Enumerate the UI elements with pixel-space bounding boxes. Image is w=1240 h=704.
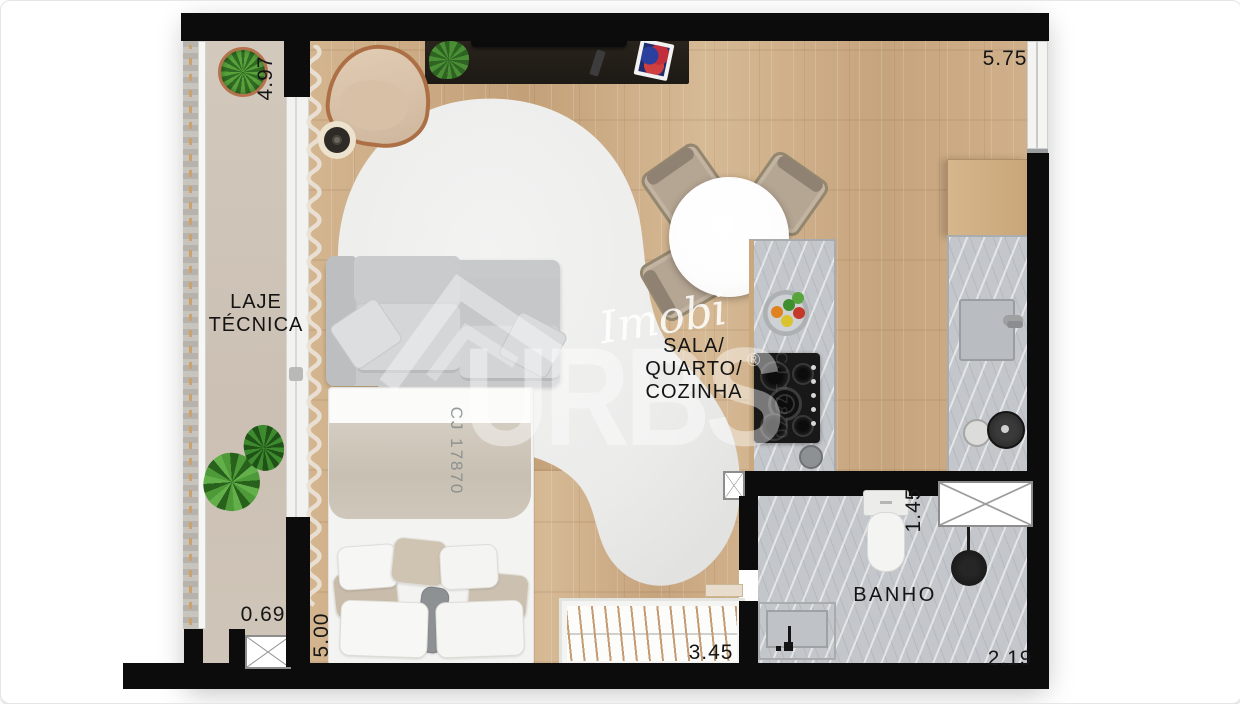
laje-tecnica-floor	[197, 41, 289, 663]
dimension-closet-width: 3.45	[681, 641, 741, 665]
cooktop-knobs	[811, 365, 816, 370]
label-line: LAJE	[204, 291, 308, 314]
tv-console	[425, 34, 689, 84]
magazine-icon	[634, 38, 675, 81]
wall-bathroom-left-a	[739, 496, 758, 570]
wall-laje-bottom-post	[184, 629, 203, 667]
blanket	[329, 423, 531, 519]
upper-cabinet	[947, 159, 1029, 237]
console-plant-icon	[429, 41, 469, 79]
door-handle-icon	[289, 367, 303, 381]
curtain-path	[309, 45, 320, 605]
machine-center	[1001, 425, 1009, 433]
kitchen-faucet-icon	[1007, 321, 1023, 328]
dimension-banho-width: 2.19	[979, 647, 1041, 671]
bed-pillow	[337, 543, 400, 591]
basin-faucet-base	[784, 642, 793, 651]
kitchen-sink-icon	[959, 299, 1015, 361]
grinder-icon	[799, 445, 823, 469]
label-line: TÉCNICA	[204, 314, 308, 337]
magazine-art	[638, 43, 669, 77]
laje-concrete-wall	[183, 41, 198, 629]
room-label-banho: BANHO	[851, 584, 939, 607]
speaker-center	[332, 135, 342, 145]
room-label-sala-quarto-cozinha: SALA/ QUARTO/ COZINHA	[629, 335, 759, 404]
coffee-maker-icon	[963, 409, 1021, 451]
burner	[792, 415, 814, 437]
burner	[760, 413, 788, 441]
dimension-laje-depth: 4.97	[254, 38, 278, 118]
fruit-bowl-icon	[763, 290, 809, 336]
wall-top	[181, 13, 1049, 41]
remote-icon	[589, 49, 606, 77]
shower-head-icon	[951, 550, 987, 586]
wall-insulation-line	[189, 45, 192, 625]
fruit-dots	[771, 306, 783, 318]
flush-button	[880, 501, 892, 504]
wall-laje-living-divider	[286, 517, 310, 667]
sofa-back-left	[354, 256, 460, 302]
sofa-back-right	[460, 278, 560, 324]
floor-speaker-icon	[318, 121, 356, 159]
double-bed	[328, 387, 532, 663]
duct-shaft-bathroom	[938, 481, 1033, 527]
dimension-laje-bottom-width: 0.69	[231, 603, 295, 627]
dimension-banho-depth: 1.45	[902, 470, 926, 550]
label-line: QUARTO/	[629, 358, 759, 381]
washbasin	[766, 610, 828, 648]
floorplan-image: Imobi URBS ® CJ 17870 CJ 17870 LAJE TÉCN…	[0, 0, 1240, 704]
wall-laje-jog	[229, 629, 245, 667]
dimension-sala-depth: 5.00	[310, 595, 334, 675]
cooktop-icon	[754, 353, 820, 443]
wall-right-upper	[1027, 153, 1049, 483]
wall-bathroom-left-b	[739, 601, 758, 665]
wall-post-top-left	[284, 31, 310, 97]
toilet-bowl	[867, 512, 905, 572]
sofa	[326, 256, 562, 390]
bed-pillow	[339, 599, 429, 658]
bathroom-door-leaf	[705, 584, 743, 597]
dimension-sala-width: 5.75	[973, 47, 1037, 71]
bathroom-sink-counter	[758, 602, 836, 660]
label-line: SALA/	[629, 335, 759, 358]
duct-shaft-bottom-left	[245, 635, 291, 669]
duvet-fold	[330, 389, 530, 425]
bed-pillow	[435, 599, 525, 658]
toilet-icon	[863, 490, 907, 572]
bed-pillow	[439, 544, 499, 591]
label-line: COZINHA	[629, 381, 759, 404]
room-label-laje-tecnica: LAJE TÉCNICA	[204, 291, 308, 337]
